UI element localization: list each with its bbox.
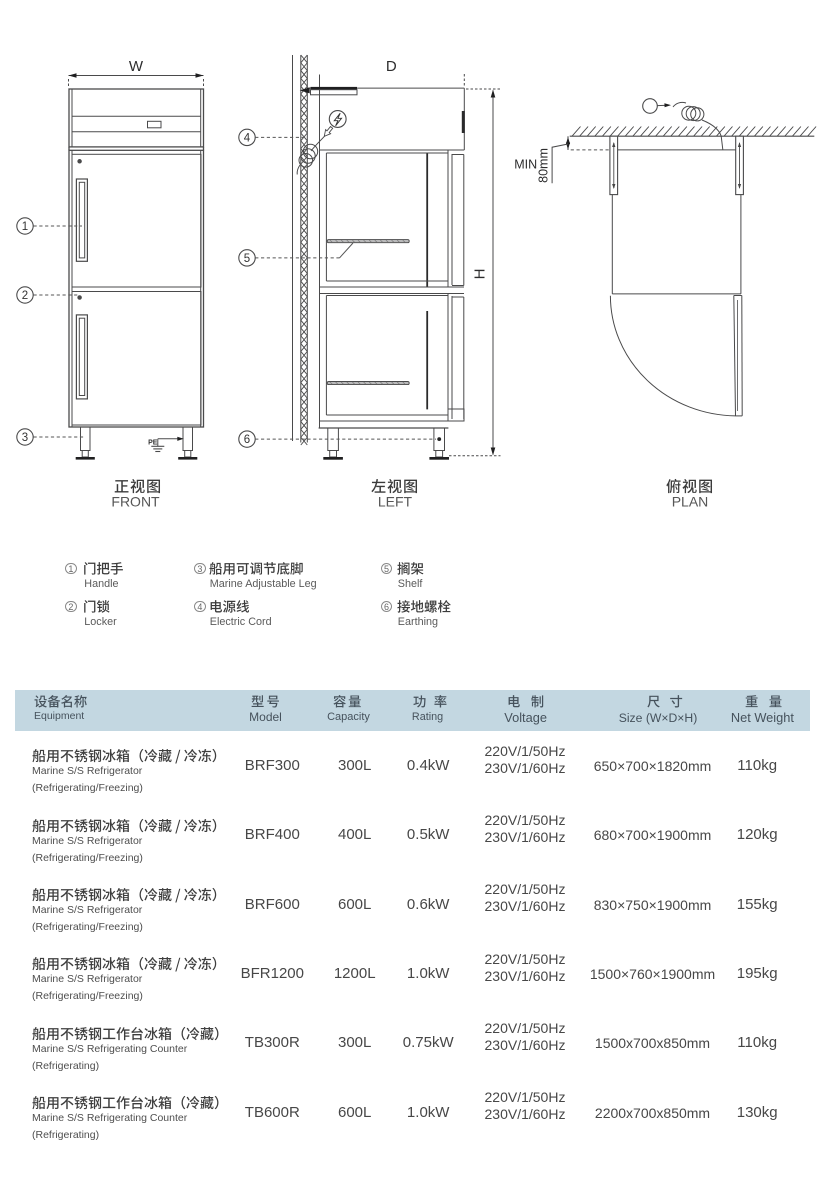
svg-text:H: H (472, 269, 489, 280)
svg-text:1: 1 (22, 221, 28, 233)
svg-text:D: D (386, 58, 397, 75)
svg-text:2: 2 (22, 290, 28, 302)
svg-text:80mm: 80mm (537, 148, 551, 183)
svg-text:W: W (129, 58, 144, 75)
svg-text:3: 3 (22, 432, 28, 444)
svg-text:PE: PE (148, 440, 158, 447)
svg-text:4: 4 (244, 132, 251, 144)
svg-text:6: 6 (244, 434, 250, 446)
svg-text:5: 5 (244, 253, 250, 265)
svg-text:MIN: MIN (514, 157, 537, 171)
